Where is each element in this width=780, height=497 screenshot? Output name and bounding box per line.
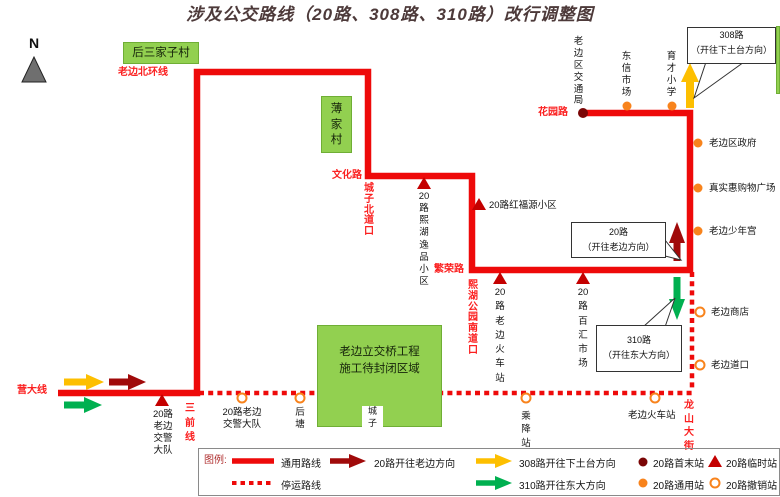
- temp-stop-triangle-huochezhan: [493, 272, 507, 284]
- callout-310: 310路 （开往东大方向）: [596, 325, 682, 372]
- station-label-jiaojing-cancel: 20路老边 交警大队: [216, 407, 268, 431]
- cancelled-stop-jiaojing: [238, 394, 247, 403]
- area-housanjiazi: 后三家子村: [123, 42, 199, 64]
- terminal-stop-dot-jiaotongju: [578, 108, 588, 118]
- legend-arrow310-label: 310路开往东大方向: [519, 477, 606, 492]
- road-label-fanrong: 繁荣路: [434, 263, 464, 276]
- road-label-yingda: 营大线: [17, 384, 47, 397]
- arrow-20-right: [109, 374, 146, 390]
- callout-20: 20路 （开往老边方向）: [571, 222, 666, 258]
- station-label-shaoniangong: 老边少年宫: [709, 226, 757, 238]
- arrow-310-down: [669, 277, 685, 320]
- station-label-houtang: 后 塘: [293, 407, 307, 431]
- area-bojiacun: 薄 家 村: [321, 96, 352, 153]
- legend-arrow20-label: 20路开往老边方向: [374, 455, 455, 470]
- area-partial-right-edge: [776, 26, 780, 94]
- temp-stop-triangle-baihui: [576, 272, 590, 284]
- stop-dot-dongxin: [623, 102, 632, 111]
- arrow-310-right: [64, 397, 102, 413]
- legend-dotted-label: 停运路线: [281, 477, 321, 492]
- compass-needle-icon: [22, 57, 46, 82]
- station-label-hongfuyuan: 20路红福源小区: [489, 200, 557, 212]
- legend-cancelled-label: 20路撤销站: [726, 477, 777, 492]
- stop-dot-shaoniangong: [694, 227, 703, 236]
- station-label-shangdian: 老边商店: [711, 307, 749, 319]
- legend-arrow308-label: 308路开往下土台方向: [519, 455, 616, 470]
- arrow-308-right: [64, 374, 104, 390]
- callout-tail-308: [694, 62, 744, 98]
- cancelled-stop-houtang: [296, 394, 305, 403]
- cancelled-stop-shangdian: [696, 308, 705, 317]
- legend-temporary-label: 20路临时站: [726, 455, 777, 470]
- road-label-wenhua: 文化路: [332, 169, 362, 182]
- road-label-laobian-beihuan: 老边北环线: [118, 66, 168, 79]
- stop-dot-zhenshihui: [694, 184, 703, 193]
- callout-tail-310: [643, 298, 675, 327]
- station-label-xihu-yipin: 20 路 熙 湖 逸 品 小 区: [415, 191, 433, 288]
- station-label-zhenshihui: 真实惠购物广场: [709, 183, 776, 195]
- legend-title: 图例:: [204, 451, 227, 466]
- stop-dot-yucai: [668, 102, 677, 111]
- station-label-daokou: 老边道口: [711, 360, 749, 372]
- road-label-xihu-gongyuan-nandaokou: 熙 湖 公 园 南 道 口: [466, 281, 480, 357]
- callout-308: 308路 （开往下土台方向）: [687, 27, 776, 64]
- stop-dot-quzhengfu: [694, 139, 703, 148]
- station-label-huochezhan-20: 20 路 老 边 火 车 站: [491, 286, 509, 386]
- cancelled-stop-chengjiang: [522, 394, 531, 403]
- station-label-chengzi: 城 子: [362, 406, 383, 432]
- station-label-huochezhan-cancel: 老边火车站: [628, 410, 676, 422]
- bus-route-diagram: 涉及公交路线（20路、308路、310路）改行调整图 N 后三家子村 薄 家 村…: [0, 0, 780, 497]
- page-title: 涉及公交路线（20路、308路、310路）改行调整图: [0, 0, 780, 25]
- station-label-yucai: 育 才 小 学: [665, 51, 678, 99]
- station-label-dongxin: 东 信 市 场: [620, 51, 633, 99]
- legend-terminal-label: 20路首末站: [653, 455, 704, 470]
- station-label-baihui: 20 路 百 汇 市 场: [574, 286, 592, 372]
- road-label-chengzi-beidaokou: 城 子 北 道 口: [362, 184, 376, 238]
- road-label-huayuan: 花园路: [538, 106, 568, 119]
- cancelled-stop-daokou: [696, 361, 705, 370]
- station-label-jiaotongju: 老 边 区 交 通 局: [572, 36, 585, 107]
- legend-general-label: 20路通用站: [653, 477, 704, 492]
- station-label-jiaojing-temp: 20路 老边 交警 大队: [150, 409, 176, 458]
- road-label-sanqian: 三 前 线: [183, 402, 197, 446]
- road-label-longshan: 龙 山 大 街: [682, 399, 696, 453]
- station-label-chengjiang: 乘 降 站: [519, 410, 533, 450]
- compass-n-label: N: [29, 34, 39, 52]
- legend-solid-label: 通用路线: [281, 455, 321, 470]
- cancelled-stop-huochezhan: [651, 394, 660, 403]
- arrow-308-up: [681, 63, 699, 108]
- station-label-quzhengfu: 老边区政府: [709, 138, 757, 150]
